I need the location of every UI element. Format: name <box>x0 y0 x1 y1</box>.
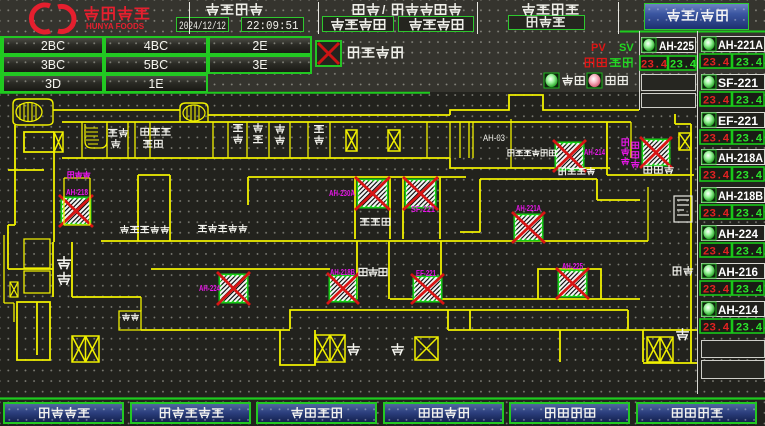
svg-text:23.4: 23.4 <box>670 60 697 72</box>
svg-text:PV: PV <box>591 42 606 54</box>
svg-text:1E: 1E <box>148 77 163 91</box>
svg-text:22:09:51: 22:09:51 <box>247 20 299 33</box>
svg-text:/: / <box>382 3 386 17</box>
svg-text:SF-221: SF-221 <box>718 78 759 90</box>
svg-text:4BC: 4BC <box>144 39 168 53</box>
svg-text:AH-218A: AH-218A <box>718 153 763 165</box>
svg-text:23.4: 23.4 <box>736 96 763 108</box>
svg-text:SF-221: SF-221 <box>411 204 435 214</box>
svg-text:23.4: 23.4 <box>703 285 730 297</box>
svg-text:AH-218B: AH-218B <box>718 191 763 203</box>
svg-text:AH-230A: AH-230A <box>329 188 355 198</box>
svg-text:23.4: 23.4 <box>736 323 763 335</box>
svg-text:HUNYA FOODS: HUNYA FOODS <box>86 22 145 31</box>
svg-text:3BC: 3BC <box>41 58 65 72</box>
svg-text:2BC: 2BC <box>41 39 65 53</box>
svg-text:23.4: 23.4 <box>736 171 763 183</box>
svg-text:23.4: 23.4 <box>736 134 763 146</box>
svg-text:AH-214: AH-214 <box>584 147 605 157</box>
svg-text:23.4: 23.4 <box>703 209 730 221</box>
svg-text:23.4: 23.4 <box>703 171 730 183</box>
svg-text:AH-218B: AH-218B <box>330 267 355 277</box>
svg-text:AH-225: AH-225 <box>659 41 695 53</box>
svg-text:AH-218: AH-218 <box>66 187 88 197</box>
svg-text:/: / <box>695 10 699 24</box>
svg-text:AH-03: AH-03 <box>483 133 505 144</box>
svg-text:23.4: 23.4 <box>703 323 730 335</box>
svg-text:23.4: 23.4 <box>703 96 730 108</box>
svg-text:AH-216: AH-216 <box>718 267 758 279</box>
svg-text:AH-225: AH-225 <box>562 261 583 271</box>
svg-text:AH-214: AH-214 <box>718 305 759 317</box>
svg-text:23.4: 23.4 <box>703 134 730 146</box>
svg-text:23.4: 23.4 <box>736 58 763 70</box>
svg-text:2024/12/12: 2024/12/12 <box>179 21 226 33</box>
svg-text:AH-221A: AH-221A <box>718 40 763 52</box>
svg-text:23.4: 23.4 <box>641 60 668 72</box>
svg-text:SV: SV <box>619 42 634 54</box>
svg-text:EF-221: EF-221 <box>718 116 759 128</box>
svg-text:AH-224: AH-224 <box>718 229 759 241</box>
svg-text:AH-224: AH-224 <box>199 283 220 293</box>
svg-text:3D: 3D <box>45 77 61 91</box>
svg-text:23.4: 23.4 <box>736 285 763 297</box>
svg-text:5BC: 5BC <box>144 58 168 72</box>
svg-text:2E: 2E <box>252 39 267 53</box>
svg-text:23.4: 23.4 <box>736 247 763 259</box>
svg-text:AH-221A: AH-221A <box>516 203 541 213</box>
svg-text:3E: 3E <box>252 58 267 72</box>
svg-text:23.4: 23.4 <box>703 58 730 70</box>
svg-text:EF-221: EF-221 <box>416 268 436 278</box>
svg-text:23.4: 23.4 <box>703 247 730 259</box>
svg-text:23.4: 23.4 <box>736 209 763 221</box>
